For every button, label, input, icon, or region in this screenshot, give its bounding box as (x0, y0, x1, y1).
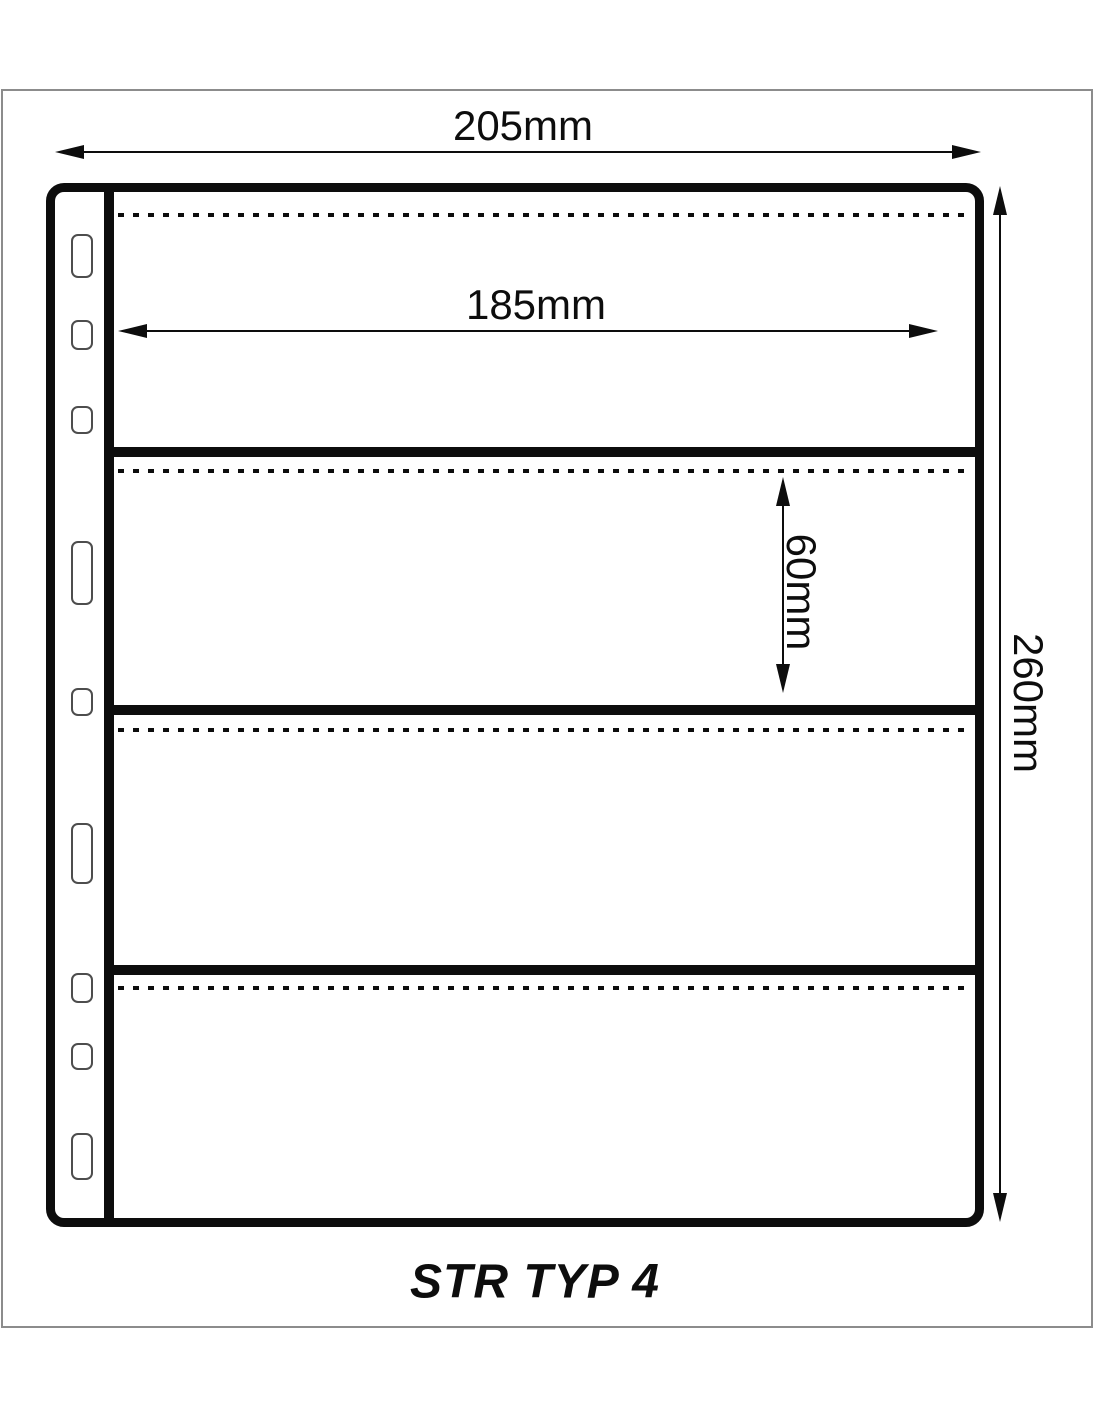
binding-hole (71, 688, 93, 716)
binding-hole (71, 234, 93, 278)
binding-hole (71, 1133, 93, 1180)
pocket-opening-dotted-line (118, 728, 971, 732)
binding-hole (71, 973, 93, 1003)
pocket-divider (110, 705, 980, 715)
sheet-type-caption: STR TYP 4 (410, 1255, 660, 1310)
binding-hole (71, 1043, 93, 1070)
total-height-label: 260mm (1004, 633, 1052, 773)
binding-hole (71, 541, 93, 605)
binding-hole (71, 320, 93, 350)
total-width-label: 205mm (453, 102, 593, 150)
pocket-opening-dotted-line (118, 213, 971, 217)
pocket-opening-dotted-line (118, 986, 971, 990)
strip-height-label: 60mm (777, 534, 825, 651)
pocket-divider (110, 447, 980, 457)
pocket-opening-dotted-line (118, 469, 971, 473)
diagram-canvas: 205mm 185mm 60mm 260mm STR TYP 4 (0, 0, 1100, 1422)
inner-width-label: 185mm (466, 281, 606, 329)
binding-hole (71, 823, 93, 884)
pocket-divider (110, 965, 980, 975)
binding-hole (71, 406, 93, 434)
